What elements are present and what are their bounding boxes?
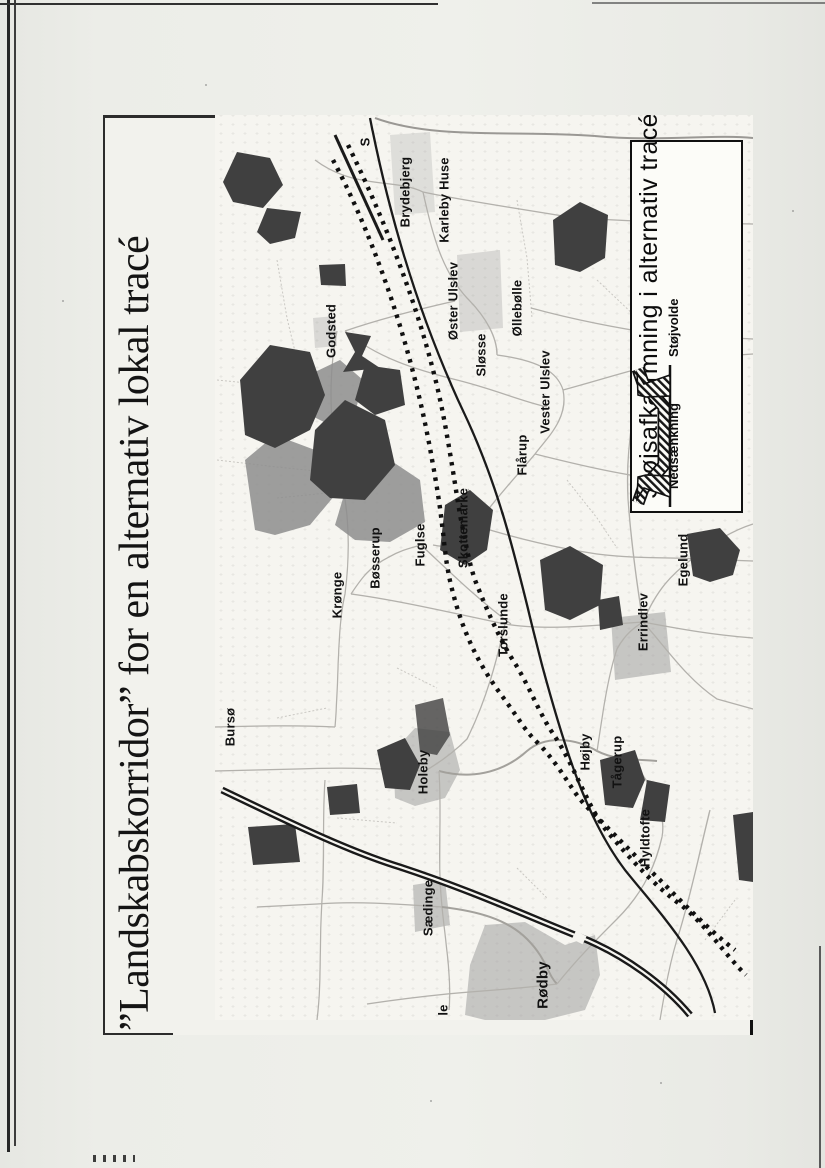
place-label: Sløsse [474, 333, 489, 376]
slide-content: ”Landskabskorridor” for en alternativ lo… [103, 115, 753, 1035]
noise-embankment-profile-icon [632, 361, 676, 511]
place-label: Torslunde [496, 593, 511, 657]
map: SBrydebjergKarleby HuseGodstedØster Ulsl… [215, 115, 753, 1020]
place-label: Egelund [676, 534, 691, 587]
legend-item-label: Støjvolde [666, 299, 681, 358]
scan-edge-line [819, 946, 821, 1168]
scan-edge-line [14, 0, 16, 1146]
place-label: Øster Ulslev [446, 262, 461, 340]
place-label: Rødby [535, 961, 552, 1009]
place-label: Sædinge [421, 880, 436, 936]
scan-edge-line [7, 0, 10, 1152]
place-label: le [436, 1004, 451, 1015]
place-label: Hyldtofte [638, 809, 653, 867]
place-label: Vester Ulslev [538, 350, 553, 434]
legend-item-stoejvolde: Støjvolde [666, 299, 682, 364]
place-label: Øllebølle [510, 280, 525, 337]
place-label: Holeby [416, 750, 431, 795]
place-label: Bøsserup [368, 527, 383, 589]
place-label: Flårup [515, 435, 530, 476]
place-label: Brydebjerg [398, 157, 413, 228]
slide-frame [103, 115, 105, 1035]
place-label: Godsted [324, 304, 339, 358]
place-label: Krønge [330, 572, 345, 619]
place-label: S [358, 138, 373, 147]
place-label: Fuglse [413, 523, 428, 566]
legend-row: Nedsænkning Støjvolde [666, 152, 682, 499]
scanned-page: { "page": { "title": "”Landskabskorridor… [0, 0, 825, 1168]
scan-edge-line [0, 3, 438, 5]
place-label: Errindlev [636, 593, 651, 651]
place-label: Tågerup [610, 736, 625, 789]
scan-smudge [93, 1155, 135, 1162]
place-label: Skottemarke [456, 488, 471, 568]
place-label: Karleby Huse [437, 157, 452, 243]
place-label: Højby [578, 733, 593, 770]
place-label: Bursø [223, 708, 238, 747]
scan-edge-line [592, 2, 825, 4]
page-title: ”Landskabskorridor” for en alternativ lo… [111, 115, 159, 1031]
legend-box: Støjsafkærmning i alternativ tracé Nedsæ… [630, 140, 743, 513]
slide-frame [103, 1033, 173, 1035]
